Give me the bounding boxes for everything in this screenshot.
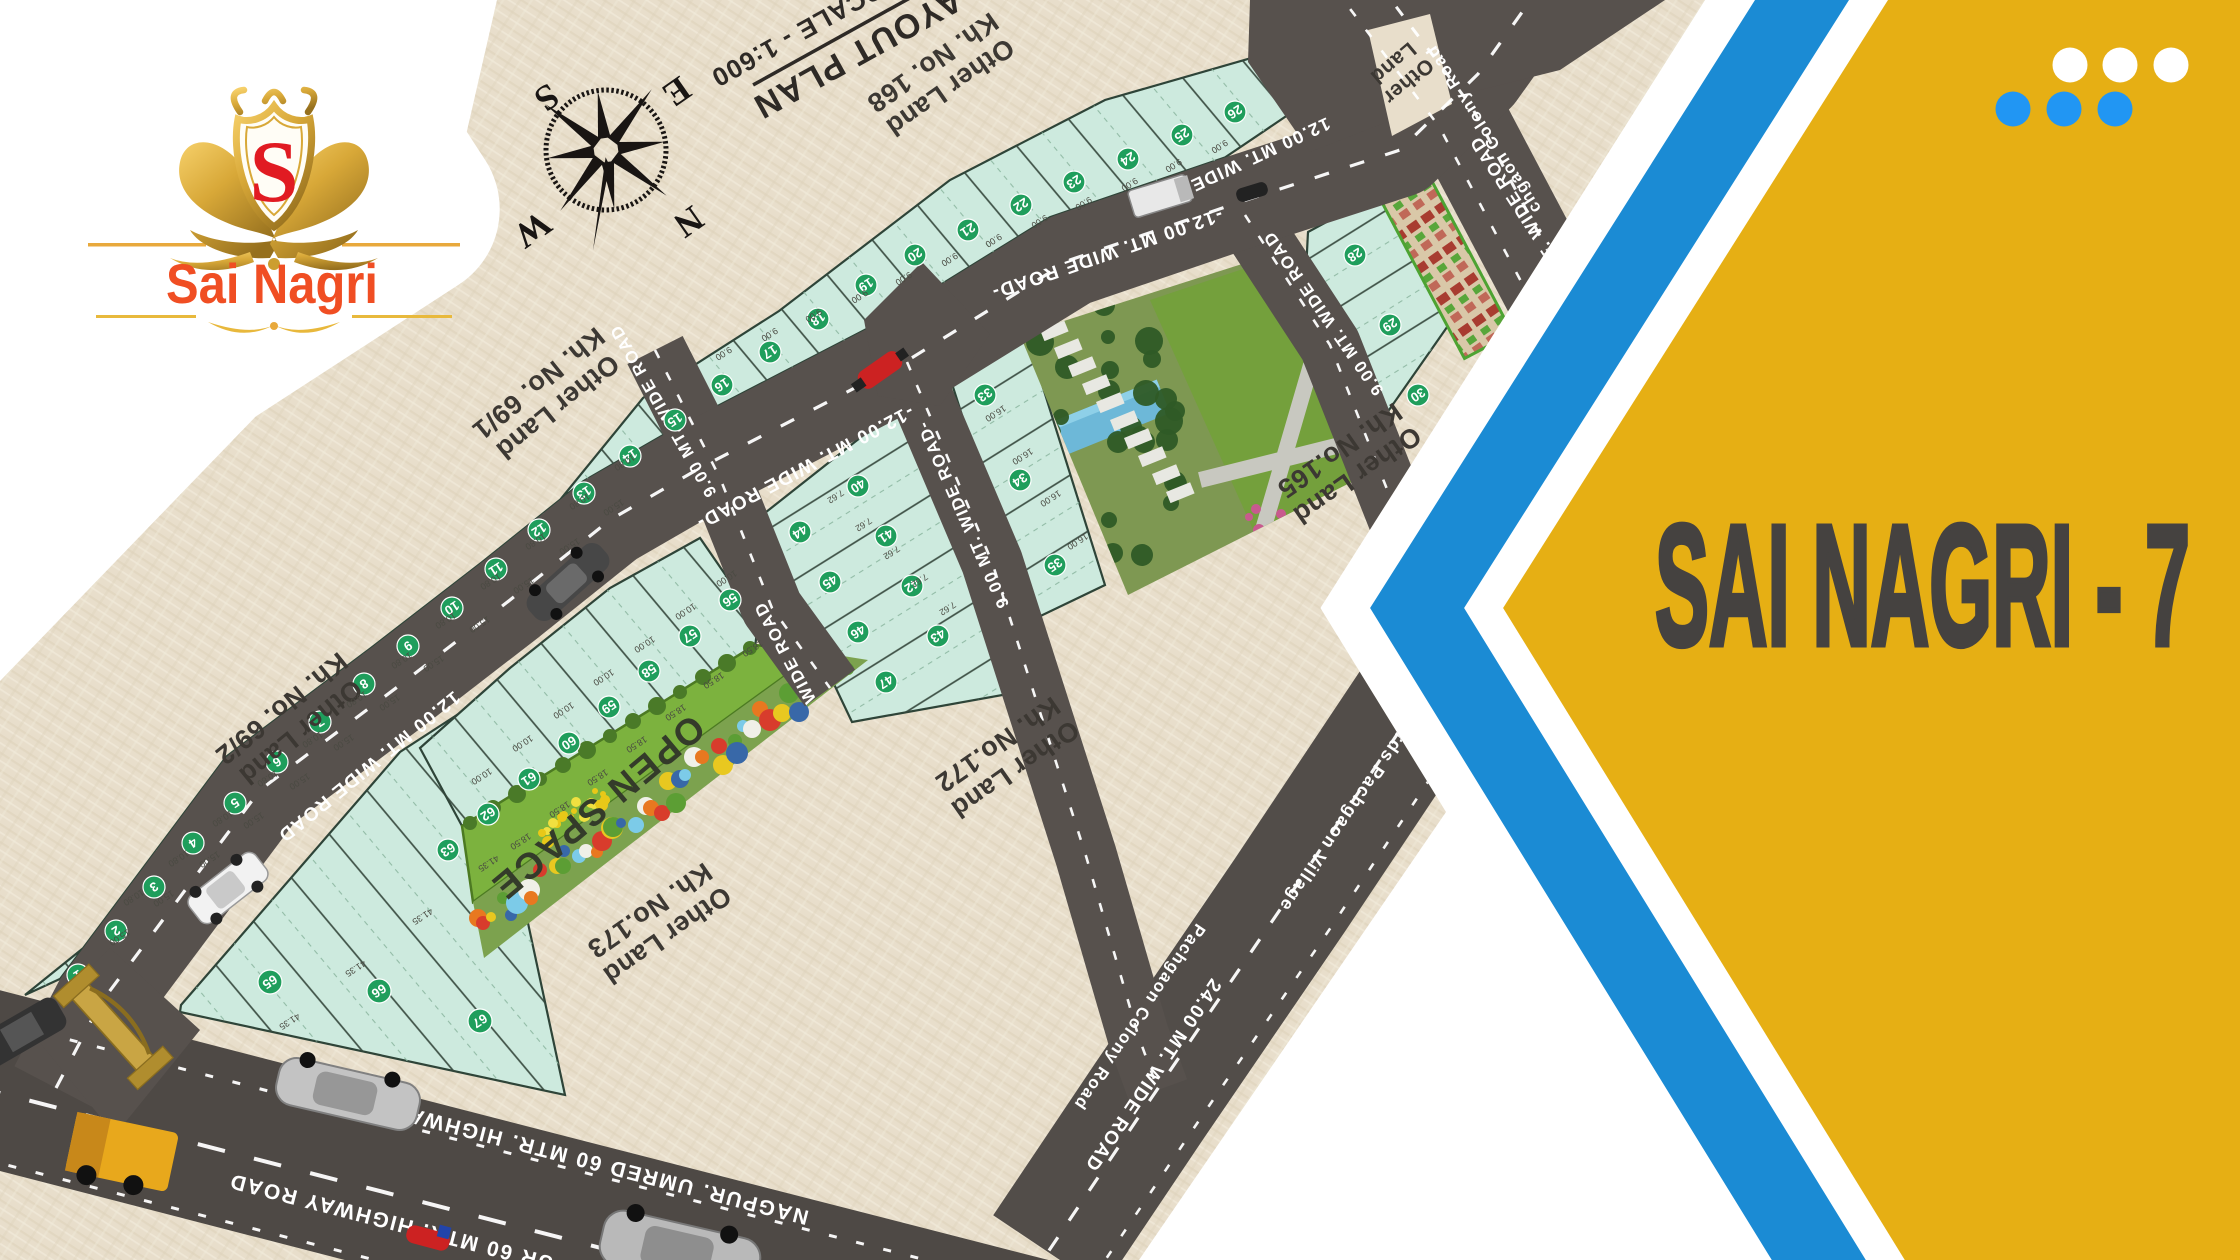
svg-text:S: S: [250, 124, 299, 221]
svg-text:SAI NAGRI - 7: SAI NAGRI - 7: [1655, 491, 2190, 683]
svg-text:Sai Nagri: Sai Nagri: [166, 252, 378, 315]
